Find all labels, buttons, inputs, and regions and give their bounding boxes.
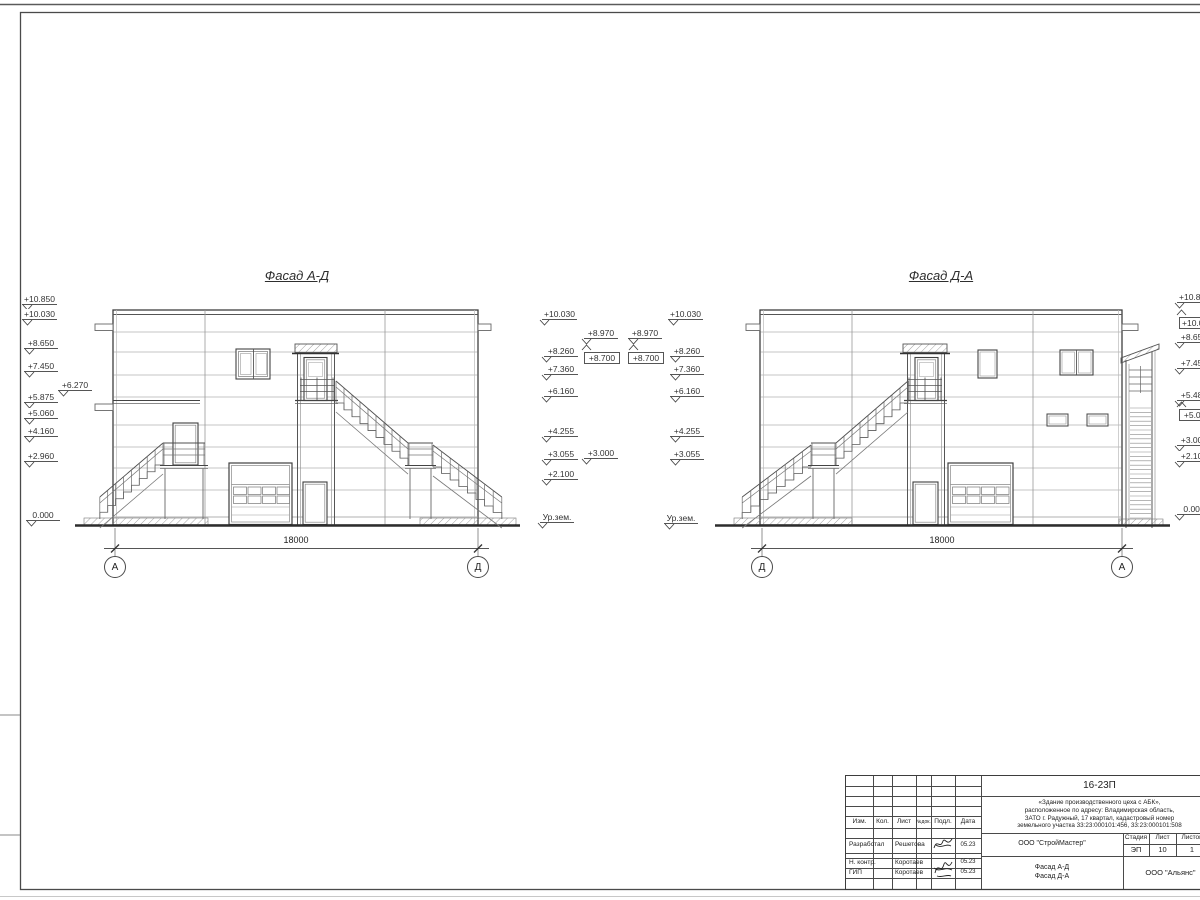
elevation-mark: +8.970 xyxy=(584,328,618,339)
tb-doc-number: 16-23П xyxy=(981,776,1200,796)
tb-date-ncontrol: 05.23 xyxy=(955,858,981,868)
tb-sheet-value: 10 xyxy=(1149,844,1176,856)
elevation-tick-icon xyxy=(581,344,592,351)
elevation-tick-icon xyxy=(670,356,681,363)
axis-bubble: Д xyxy=(751,556,773,578)
elevation-mark: +10.850 xyxy=(22,294,57,305)
tb-drawing-title-line2: Фасад Д-А xyxy=(1035,873,1069,882)
tb-name-ncontrol: Коротаев xyxy=(892,858,934,868)
tb-name-developer: Решетова xyxy=(892,838,934,853)
axis-bubble: А xyxy=(1111,556,1133,578)
elevation-tick-icon xyxy=(1174,368,1185,375)
elevation-tick-icon xyxy=(1174,342,1185,349)
elevation-mark: +3.000 xyxy=(1177,435,1200,446)
elevation-mark: +5.485 xyxy=(1177,390,1200,401)
elevation-mark: 0.000 xyxy=(1177,504,1200,515)
tb-date-developer: 05.23 xyxy=(955,838,981,853)
elevation-mark: +10.030 xyxy=(22,309,57,320)
tb-address-line: «Здание производственного цеха с АБК», xyxy=(1039,799,1161,807)
elevation-mark: +8.970 xyxy=(628,328,662,339)
tb-stage-header: Стадия xyxy=(1123,833,1149,844)
elevation-mark: +6.270 xyxy=(58,380,92,391)
title-block: Изм. Кол. Лист №док. Подл. Дата Разработ… xyxy=(845,775,1200,890)
axis-bubble: Д xyxy=(467,556,489,578)
elevation-tick-icon xyxy=(58,390,69,397)
tb-org-designer: ООО "СтройМастер" xyxy=(981,833,1123,856)
tb-address-line: ЗАТО г. Радужный, 17 квартал, кадастровы… xyxy=(1025,815,1175,823)
facade-ad-title: Фасад А-Д xyxy=(227,268,367,283)
tb-col-ndok: №док. xyxy=(916,816,931,828)
tb-total-header: Листов xyxy=(1176,833,1200,844)
tb-drawing-title-line1: Фасад А-Д xyxy=(1035,864,1069,873)
tb-role-gip: ГИП xyxy=(846,868,895,878)
elevation-mark: +5.875 xyxy=(24,392,58,403)
signature-korotaev xyxy=(932,857,954,879)
tb-date-gip: 05.23 xyxy=(955,868,981,878)
elevation-mark: +6.160 xyxy=(670,386,704,397)
elevation-tick-icon xyxy=(541,396,552,403)
elevation-tick-icon xyxy=(541,459,552,466)
tb-name-gip: Коротаев xyxy=(892,868,934,878)
tb-col-data: Дата xyxy=(955,816,981,828)
elevation-tick-icon xyxy=(24,371,35,378)
tb-role-developer: Разработал xyxy=(846,838,895,853)
elevation-mark: +8.700 xyxy=(584,352,620,364)
elevation-value: +10.030 xyxy=(1179,317,1200,329)
elevation-mark: +8.650 xyxy=(1177,332,1200,343)
elevation-mark: +10.030 xyxy=(542,309,577,320)
elevation-tick-icon xyxy=(541,374,552,381)
elevation-mark: +7.360 xyxy=(544,364,578,375)
elevation-mark: +4.255 xyxy=(544,426,578,437)
elevation-mark: +2.100 xyxy=(544,469,578,480)
tb-col-izm: Изм. xyxy=(846,816,873,828)
elevation-tick-icon xyxy=(1176,309,1187,316)
tb-project-description: «Здание производственного цеха с АБК», р… xyxy=(981,796,1200,833)
tb-org-contractor: ООО "Альянс" xyxy=(1123,856,1200,889)
elevation-mark: +3.000 xyxy=(584,448,618,459)
elevation-mark: +7.450 xyxy=(24,361,58,372)
elevation-mark: +10.850 xyxy=(1177,292,1200,303)
elevation-mark: +5.060 xyxy=(24,408,58,419)
elevation-tick-icon xyxy=(541,356,552,363)
elevation-mark: +2.960 xyxy=(24,451,58,462)
elevation-mark: +3.055 xyxy=(544,449,578,460)
elevation-mark: +8.260 xyxy=(670,346,704,357)
tb-drawing-title: Фасад А-Д Фасад Д-А xyxy=(981,856,1123,889)
elevation-tick-icon xyxy=(1174,514,1185,521)
elevation-tick-icon xyxy=(668,319,679,326)
signature-developer xyxy=(932,835,954,853)
tb-col-podl: Подл. xyxy=(931,816,955,828)
elevation-mark: +8.700 xyxy=(628,352,664,364)
elevation-tick-icon xyxy=(24,418,35,425)
tb-sheet-header: Лист xyxy=(1149,833,1176,844)
elevation-tick-icon xyxy=(581,458,592,465)
drawing-sheet: Фасад А-Д Фасад Д-А +10.850+10.030+8.650… xyxy=(0,0,1200,900)
elevation-tick-icon xyxy=(628,344,639,351)
tb-address-line: расположенное по адресу: Владимирская об… xyxy=(1025,807,1175,815)
elevation-tick-icon xyxy=(539,319,550,326)
elevation-mark: 0.000 xyxy=(26,510,60,521)
tb-stage-value: ЭП xyxy=(1123,844,1149,856)
elevation-mark: +3.055 xyxy=(670,449,704,460)
elevation-tick-icon xyxy=(670,459,681,466)
elevation-tick-icon xyxy=(670,436,681,443)
axis-bubble: А xyxy=(104,556,126,578)
elevation-mark: +4.160 xyxy=(24,426,58,437)
elevation-mark: +7.450 xyxy=(1177,358,1200,369)
dimension-label: 18000 xyxy=(912,535,972,545)
elevation-tick-icon xyxy=(664,523,675,530)
elevation-mark: +8.650 xyxy=(24,338,58,349)
elevation-tick-icon xyxy=(24,348,35,355)
elevation-mark: +4.255 xyxy=(670,426,704,437)
tb-address-line: земельного участка 33:23:000101:456, 33:… xyxy=(1017,822,1181,830)
elevation-tick-icon xyxy=(1174,302,1185,309)
elevation-value: +8.700 xyxy=(584,352,620,364)
elevation-tick-icon xyxy=(22,319,33,326)
tb-total-value: 1 xyxy=(1176,844,1200,856)
tb-col-kol: Кол. xyxy=(873,816,892,828)
facade-da-title: Фасад Д-А xyxy=(871,268,1011,283)
elevation-tick-icon xyxy=(537,522,548,529)
tb-col-list: Лист xyxy=(892,816,916,828)
elevation-tick-icon xyxy=(1174,461,1185,468)
elevation-mark: +10.030 xyxy=(1179,317,1200,329)
elevation-mark: +6.160 xyxy=(544,386,578,397)
elevation-tick-icon xyxy=(541,436,552,443)
elevation-tick-icon xyxy=(24,461,35,468)
elevation-mark: +5.080 xyxy=(1179,409,1200,421)
elevation-tick-icon xyxy=(670,374,681,381)
annotation-overlay: Фасад А-Д Фасад Д-А +10.850+10.030+8.650… xyxy=(0,0,1200,900)
elevation-mark: Ур.зем. xyxy=(540,512,574,523)
elevation-value: +5.080 xyxy=(1179,409,1200,421)
elevation-mark: +7.360 xyxy=(670,364,704,375)
elevation-tick-icon xyxy=(1176,401,1187,408)
elevation-mark: Ур.зем. xyxy=(664,513,698,524)
elevation-tick-icon xyxy=(24,436,35,443)
dimension-label: 18000 xyxy=(266,535,326,545)
elevation-mark: +10.030 xyxy=(668,309,703,320)
elevation-tick-icon xyxy=(670,396,681,403)
tb-role-ncontrol: Н. контр. xyxy=(846,858,895,868)
elevation-tick-icon xyxy=(26,520,37,527)
elevation-mark: +2.100 xyxy=(1177,451,1200,462)
elevation-mark: +8.260 xyxy=(544,346,578,357)
elevation-value: +8.700 xyxy=(628,352,664,364)
elevation-tick-icon xyxy=(541,479,552,486)
